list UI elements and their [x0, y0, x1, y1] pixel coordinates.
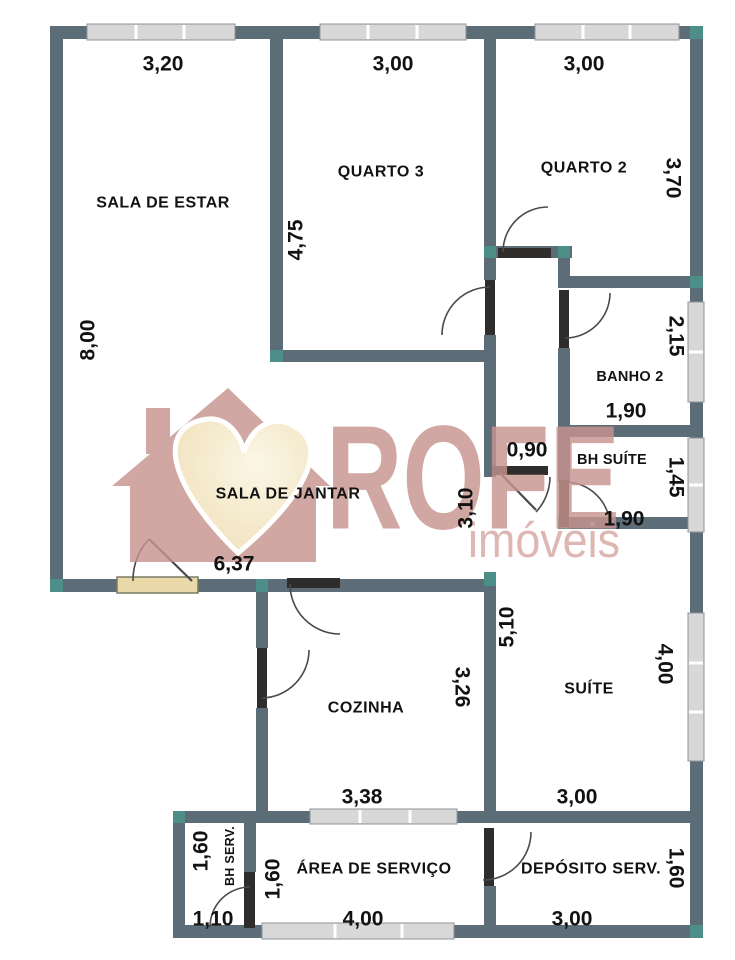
wall-sala-quarto3-divider [270, 26, 283, 362]
dim-hall-width: 0,90 [507, 439, 548, 462]
corner-accent [173, 811, 185, 823]
floor-plan-canvas: ROFE imóveis SALA DE ESTAR QUARTO 3 QUAR… [0, 0, 735, 960]
window-banho2 [688, 302, 704, 402]
wall-deposito-left [484, 886, 496, 925]
corner-accent [50, 579, 63, 592]
dim-jantar-right: 3,10 [455, 488, 478, 529]
wall-center-vert-lower [484, 572, 496, 823]
dim-bhsuite-right: 1,45 [665, 457, 688, 498]
corner-accent [690, 276, 703, 288]
dim-bhserv-width: 1,10 [193, 908, 234, 931]
door-quarto2 [498, 207, 551, 258]
dim-quarto3-top: 3,00 [373, 53, 414, 76]
window-bhsuite [688, 438, 704, 532]
dim-area-width: 4,00 [343, 908, 384, 931]
wall-cozinha-left-lower [256, 708, 268, 823]
dim-bhsuite-width: 1,90 [604, 508, 645, 531]
room-label-bhserv: BH SERV. [223, 826, 237, 886]
window-suite [688, 613, 704, 761]
door-cozinha-top [287, 578, 340, 634]
dim-cozinha-right: 3,26 [451, 667, 474, 708]
room-label-area-servico: ÁREA DE SERVIÇO [296, 859, 451, 878]
room-label-sala-jantar: SALA DE JANTAR [216, 486, 361, 503]
watermark-tagline: imóveis [468, 514, 620, 568]
dim-banho2-right: 2,15 [665, 316, 688, 357]
dim-sala-left: 8,00 [77, 320, 100, 361]
door-banho2 [559, 290, 610, 348]
room-label-sala-estar: SALA DE ESTAR [96, 195, 230, 212]
corner-accent [256, 579, 268, 592]
room-label-quarto3: QUARTO 3 [338, 164, 424, 181]
wall-center-vert-upper [484, 26, 496, 280]
room-label-quarto2: QUARTO 2 [541, 160, 627, 177]
wall-banho2-top [558, 276, 703, 288]
room-label-cozinha: COZINHA [328, 700, 404, 717]
room-label-suite: SUÍTE [564, 679, 614, 698]
dim-jantar-width: 6,37 [214, 553, 255, 576]
window-quarto3 [320, 24, 466, 40]
dim-quarto2-top: 3,00 [564, 53, 605, 76]
watermark: ROFE imóveis [112, 388, 620, 568]
door-cozinha-left [257, 648, 309, 708]
dim-cozinha-width: 3,38 [342, 786, 383, 809]
wall-left [50, 26, 63, 592]
corner-accent [690, 925, 703, 938]
room-label-deposito: DEPÓSITO SERV. [521, 859, 661, 878]
dim-deposito-right: 1,60 [665, 848, 688, 889]
wall-bhserv-divider [244, 823, 256, 872]
corner-accent [690, 26, 703, 39]
dim-suite-left: 5,10 [496, 607, 519, 648]
dim-banho2-width: 1,90 [606, 400, 647, 423]
dim-quarto3-height: 4,75 [285, 219, 308, 260]
dim-sala-top: 3,20 [143, 53, 184, 76]
dim-deposito-width: 3,00 [552, 908, 593, 931]
dim-bhserv-height: 1,60 [190, 831, 213, 872]
wall-quarto3-bottom [270, 350, 496, 362]
dim-quarto2-right: 3,70 [662, 158, 685, 199]
room-label-bhsuite: BH SUÍTE [577, 451, 647, 468]
window-sala [87, 24, 235, 40]
dim-suite-right: 4,00 [654, 644, 677, 685]
window-cozinha [310, 809, 457, 824]
dim-area-height: 1,60 [262, 859, 285, 900]
wall-strip-left [173, 811, 185, 938]
corner-accent [270, 350, 283, 362]
corner-accent [484, 246, 496, 258]
corner-accent [484, 572, 496, 586]
corner-accent [558, 246, 570, 258]
door-quarto3 [442, 280, 495, 335]
floor-plan: ROFE imóveis SALA DE ESTAR QUARTO 3 QUAR… [0, 0, 735, 960]
window-quarto2 [535, 24, 679, 40]
room-label-banho2: BANHO 2 [596, 369, 663, 385]
dim-suite-width: 3,00 [557, 786, 598, 809]
